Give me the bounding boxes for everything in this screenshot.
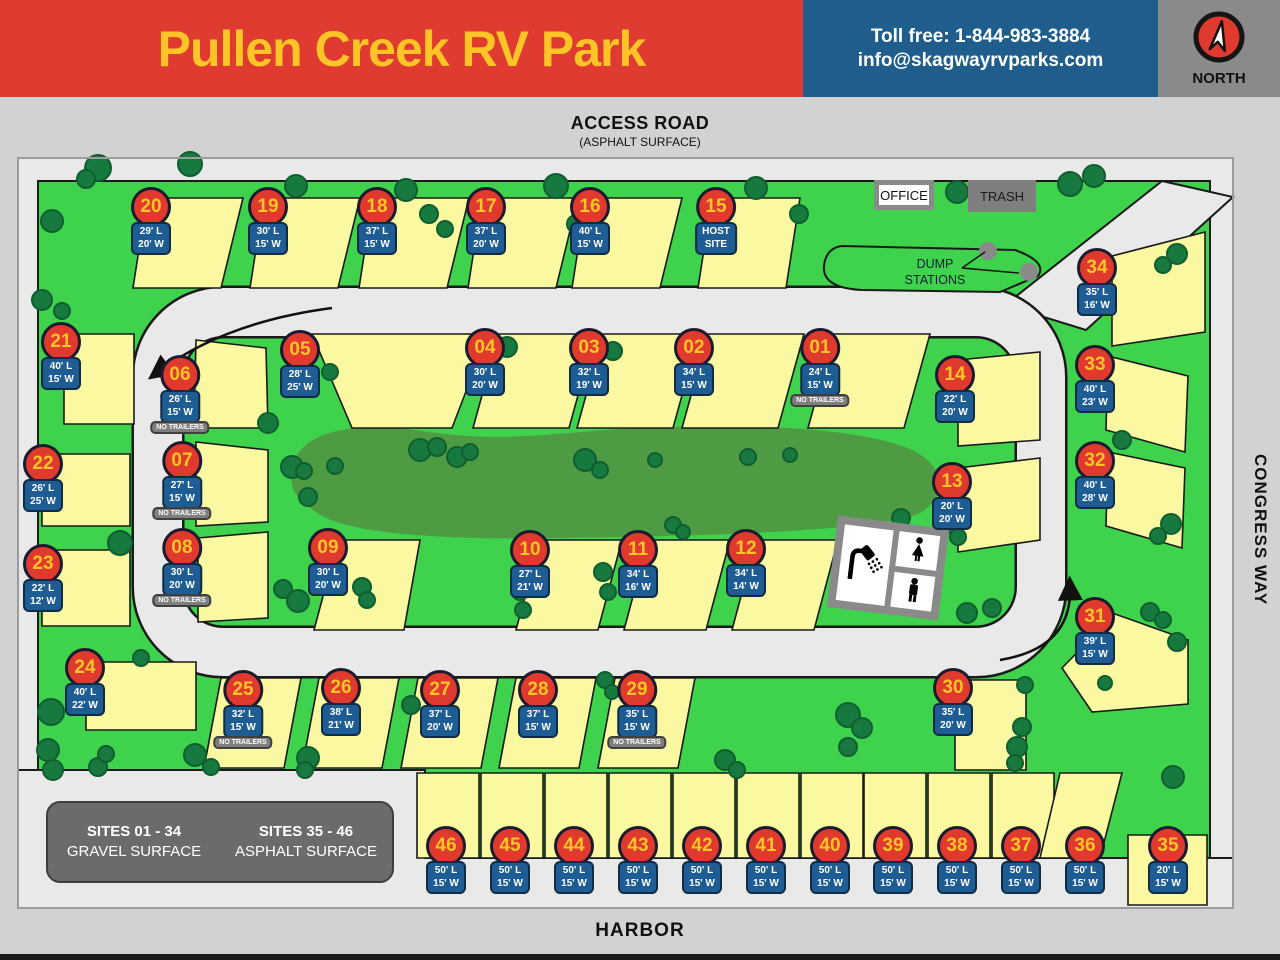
site-number: 09 (308, 528, 348, 568)
site-number: 29 (617, 670, 657, 710)
site-marker-30: 3035' L20' W (933, 668, 973, 736)
site-dimensions: HOSTSITE (695, 222, 737, 255)
site-number: 36 (1065, 826, 1105, 866)
site-marker-42: 4250' L15' W (682, 826, 722, 894)
womens-room (895, 531, 940, 571)
no-trailers-badge: NO TRAILERS (152, 594, 211, 607)
site-number: 35 (1148, 826, 1188, 866)
site-marker-32: 3240' L28' W (1075, 441, 1115, 509)
site-marker-44: 4450' L15' W (554, 826, 594, 894)
site-dimensions: 37' L15' W (518, 705, 558, 738)
site-dimensions: 38' L21' W (321, 703, 361, 736)
site-marker-23: 2322' L12' W (23, 544, 63, 612)
site-number: 24 (65, 648, 105, 688)
site-dimensions: 50' L15' W (426, 861, 466, 894)
site-marker-12: 1234' L14' W (726, 529, 766, 597)
site-marker-39: 3950' L15' W (873, 826, 913, 894)
site-number: 46 (426, 826, 466, 866)
site-number: 32 (1075, 441, 1115, 481)
dump-station-2 (1020, 263, 1038, 281)
site-number: 12 (726, 529, 766, 569)
site-dimensions: 22' L12' W (23, 579, 63, 612)
site-marker-02: 0234' L15' W (674, 328, 714, 396)
site-number: 06 (160, 355, 200, 395)
site-marker-36: 3650' L15' W (1065, 826, 1105, 894)
site-marker-28: 2837' L15' W (518, 670, 558, 738)
site-number: 21 (41, 322, 81, 362)
site-marker-05: 0528' L25' W (280, 330, 320, 398)
site-number: 03 (569, 328, 609, 368)
site-marker-29: 2935' L15' WNO TRAILERS (607, 670, 666, 749)
site-dimensions: 40' L22' W (65, 683, 105, 716)
site-dimensions: 40' L28' W (1075, 476, 1115, 509)
site-number: 02 (674, 328, 714, 368)
site-marker-41: 4150' L15' W (746, 826, 786, 894)
site-dimensions: 27' L15' W (162, 476, 202, 509)
site-dimensions: 50' L15' W (554, 861, 594, 894)
site-number: 30 (933, 668, 973, 708)
site-number: 17 (466, 187, 506, 227)
site-number: 19 (248, 187, 288, 227)
park-map-page: Pullen Creek RV Park Toll free: 1-844-98… (0, 0, 1280, 960)
site-number: 45 (490, 826, 530, 866)
site-dimensions: 29' L20' W (131, 222, 171, 255)
site-marker-04: 0430' L20' W (465, 328, 505, 396)
site-marker-13: 1320' L20' W (932, 462, 972, 530)
site-marker-35: 3520' L15' W (1148, 826, 1188, 894)
site-marker-37: 3750' L15' W (1001, 826, 1041, 894)
site-marker-15: 15HOSTSITE (695, 187, 737, 255)
site-dimensions: 50' L15' W (810, 861, 850, 894)
man-icon (901, 576, 924, 607)
site-dimensions: 26' L25' W (23, 479, 63, 512)
no-trailers-badge: NO TRAILERS (152, 507, 211, 520)
woman-icon (906, 535, 929, 566)
site-number: 40 (810, 826, 850, 866)
site-dimensions: 34' L14' W (726, 564, 766, 597)
site-dimensions: 37' L20' W (466, 222, 506, 255)
legend: SITES 01 - 34 GRAVEL SURFACE SITES 35 - … (46, 801, 394, 883)
site-marker-10: 1027' L21' W (510, 530, 550, 598)
site-number: 15 (696, 187, 736, 227)
site-number: 43 (618, 826, 658, 866)
site-number: 28 (518, 670, 558, 710)
site-dimensions: 22' L20' W (935, 390, 975, 423)
site-marker-22: 2226' L25' W (23, 444, 63, 512)
site-dimensions: 20' L15' W (1148, 861, 1188, 894)
trash-area: TRASH (968, 180, 1036, 212)
site-marker-33: 3340' L23' W (1075, 345, 1115, 413)
site-marker-18: 1837' L15' W (357, 187, 397, 255)
site-marker-40: 4050' L15' W (810, 826, 850, 894)
no-trailers-badge: NO TRAILERS (607, 736, 666, 749)
site-number: 33 (1075, 345, 1115, 385)
site-marker-38: 3850' L15' W (937, 826, 977, 894)
site-marker-03: 0332' L19' W (569, 328, 609, 396)
site-marker-17: 1737' L20' W (466, 187, 506, 255)
site-dimensions: 50' L15' W (618, 861, 658, 894)
site-dimensions: 24' L15' W (800, 363, 840, 396)
site-number: 41 (746, 826, 786, 866)
legend-asphalt: SITES 35 - 46 ASPHALT SURFACE (220, 822, 392, 863)
site-marker-07: 0727' L15' WNO TRAILERS (152, 441, 211, 520)
site-marker-31: 3139' L15' W (1075, 597, 1115, 665)
site-marker-34: 3435' L16' W (1077, 248, 1117, 316)
site-dimensions: 28' L25' W (280, 365, 320, 398)
site-number: 38 (937, 826, 977, 866)
site-marker-19: 1930' L15' W (248, 187, 288, 255)
shower-icon (842, 543, 887, 588)
site-dimensions: 37' L20' W (420, 705, 460, 738)
site-dimensions: 35' L16' W (1077, 283, 1117, 316)
no-trailers-badge: NO TRAILERS (150, 421, 209, 434)
site-number: 25 (223, 670, 263, 710)
site-number: 11 (618, 530, 658, 570)
site-number: 14 (935, 355, 975, 395)
site-marker-16: 1640' L15' W (570, 187, 610, 255)
dump-stations-label: DUMP STATIONS (875, 256, 995, 289)
site-number: 42 (682, 826, 722, 866)
legend-gravel: SITES 01 - 34 GRAVEL SURFACE (48, 822, 220, 863)
site-dimensions: 32' L15' W (223, 705, 263, 738)
site-dimensions: 50' L15' W (682, 861, 722, 894)
office-building: OFFICE (874, 180, 934, 210)
site-dimensions: 32' L19' W (569, 363, 609, 396)
site-number: 20 (131, 187, 171, 227)
site-marker-43: 4350' L15' W (618, 826, 658, 894)
site-marker-46: 4650' L15' W (426, 826, 466, 894)
site-dimensions: 39' L15' W (1075, 632, 1115, 665)
site-marker-45: 4550' L15' W (490, 826, 530, 894)
restroom-building (827, 516, 949, 621)
site-dimensions: 27' L21' W (510, 565, 550, 598)
site-dimensions: 50' L15' W (490, 861, 530, 894)
shower-room (836, 524, 894, 605)
site-marker-01: 0124' L15' WNO TRAILERS (790, 328, 849, 407)
site-marker-11: 1134' L16' W (618, 530, 658, 598)
site-dimensions: 50' L15' W (937, 861, 977, 894)
site-dimensions: 40' L15' W (570, 222, 610, 255)
site-marker-20: 2029' L20' W (131, 187, 171, 255)
site-number: 04 (465, 328, 505, 368)
site-number: 18 (357, 187, 397, 227)
site-dimensions: 50' L15' W (1065, 861, 1105, 894)
site-number: 31 (1075, 597, 1115, 637)
site-marker-06: 0626' L15' WNO TRAILERS (150, 355, 209, 434)
site-number: 10 (510, 530, 550, 570)
site-dimensions: 50' L15' W (873, 861, 913, 894)
site-dimensions: 20' L20' W (932, 497, 972, 530)
site-dimensions: 30' L15' W (248, 222, 288, 255)
site-number: 13 (932, 462, 972, 502)
site-marker-25: 2532' L15' WNO TRAILERS (213, 670, 272, 749)
site-marker-27: 2737' L20' W (420, 670, 460, 738)
site-dimensions: 50' L15' W (746, 861, 786, 894)
site-number: 05 (280, 330, 320, 370)
no-trailers-badge: NO TRAILERS (790, 394, 849, 407)
site-dimensions: 34' L15' W (674, 363, 714, 396)
site-marker-24: 2440' L22' W (65, 648, 105, 716)
site-dimensions: 30' L20' W (162, 563, 202, 596)
site-marker-08: 0830' L20' WNO TRAILERS (152, 528, 211, 607)
site-dimensions: 40' L15' W (41, 357, 81, 390)
site-number: 07 (162, 441, 202, 481)
site-number: 39 (873, 826, 913, 866)
site-dimensions: 35' L20' W (933, 703, 973, 736)
site-marker-21: 2140' L15' W (41, 322, 81, 390)
site-dimensions: 34' L16' W (618, 565, 658, 598)
site-number: 01 (800, 328, 840, 368)
no-trailers-badge: NO TRAILERS (213, 736, 272, 749)
site-dimensions: 37' L15' W (357, 222, 397, 255)
site-number: 16 (570, 187, 610, 227)
site-number: 34 (1077, 248, 1117, 288)
site-number: 26 (321, 668, 361, 708)
site-dimensions: 26' L15' W (160, 390, 200, 423)
site-number: 22 (23, 444, 63, 484)
site-number: 37 (1001, 826, 1041, 866)
mens-room (890, 572, 935, 612)
site-number: 27 (420, 670, 460, 710)
site-number: 23 (23, 544, 63, 584)
site-number: 08 (162, 528, 202, 568)
site-marker-09: 0930' L20' W (308, 528, 348, 596)
site-marker-26: 2638' L21' W (321, 668, 361, 736)
site-number: 44 (554, 826, 594, 866)
site-dimensions: 40' L23' W (1075, 380, 1115, 413)
site-dimensions: 30' L20' W (308, 563, 348, 596)
site-dimensions: 30' L20' W (465, 363, 505, 396)
site-marker-14: 1422' L20' W (935, 355, 975, 423)
site-dimensions: 35' L15' W (617, 705, 657, 738)
site-dimensions: 50' L15' W (1001, 861, 1041, 894)
